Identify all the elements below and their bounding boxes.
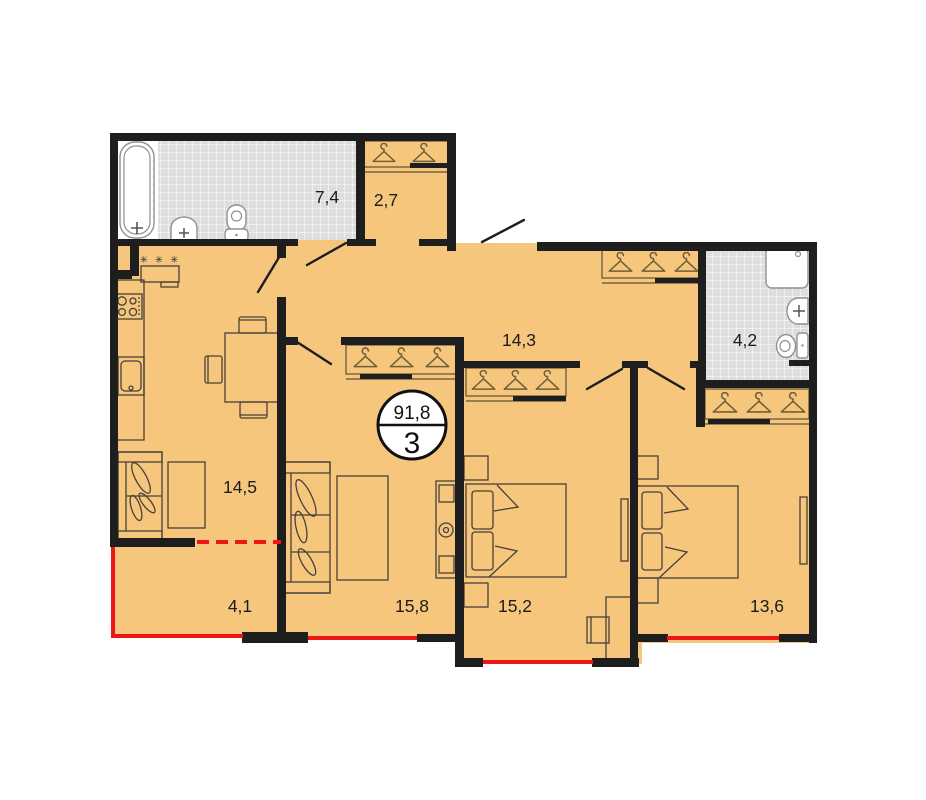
area-label-bathroom-small: 4,2 [733, 330, 757, 350]
balcony-edge-line [111, 547, 115, 636]
wardrobe-shelf-bar [708, 419, 770, 424]
badge-rooms-count: 3 [404, 427, 421, 460]
wall-segment [110, 133, 118, 547]
wall-segment [277, 297, 286, 643]
appliance-marks: ✳ ✳ ✳ [140, 255, 181, 266]
wall-segment [809, 242, 817, 643]
wardrobe-shelf-bar [360, 374, 412, 379]
wall-segment [356, 141, 365, 246]
wall-segment [630, 634, 668, 642]
floor-plan-page: ✳ ✳ ✳ [0, 0, 926, 800]
window-line [308, 636, 417, 640]
area-label-bedroom-one: 15,2 [498, 596, 532, 616]
wall-segment [537, 242, 817, 251]
wardrobe-shelf-bar [513, 396, 566, 401]
entrance-door-swing [482, 220, 524, 242]
area-label-kitchen-living: 14,5 [223, 477, 257, 497]
wall-segment [455, 337, 464, 667]
wardrobe-shelf-bar [410, 163, 448, 168]
window-line [483, 660, 593, 664]
area-label-balcony: 4,1 [228, 596, 252, 616]
wall-segment [417, 634, 464, 642]
badge-total-area: 91,8 [394, 403, 431, 424]
area-badge: 91,8 3 [378, 391, 446, 460]
wall-segment [463, 361, 580, 368]
toilet-icon [777, 335, 796, 358]
wall-segment [447, 141, 456, 251]
toilet-drain [801, 344, 803, 346]
wall-segment [698, 380, 817, 388]
wall-segment [789, 360, 811, 366]
area-label-corridor: 14,3 [502, 330, 536, 350]
wall-segment [110, 538, 195, 547]
wall-segment [110, 270, 132, 279]
shower-icon [766, 247, 808, 288]
wall-segment [696, 361, 705, 427]
wall-segment [341, 337, 464, 345]
toilet-drain [235, 234, 238, 237]
wardrobe-shelf-bar [655, 278, 703, 283]
wall-segment [277, 244, 286, 258]
area-label-bedroom-two: 13,6 [750, 596, 784, 616]
window-line [667, 636, 779, 640]
wall-segment [779, 634, 817, 642]
floor-plan-svg: ✳ ✳ ✳ [0, 0, 926, 800]
area-label-hall-wardrobe: 2,7 [374, 190, 398, 210]
area-label-bathroom-main: 7,4 [315, 187, 340, 207]
wall-segment [592, 658, 639, 667]
wall-segment [455, 658, 483, 667]
area-label-living-room: 15,8 [395, 596, 429, 616]
toilet-icon [227, 205, 246, 231]
balcony-edge-line [111, 634, 243, 638]
wall-segment [242, 632, 308, 643]
wall-segment [110, 133, 456, 141]
wall-segment [630, 366, 638, 667]
